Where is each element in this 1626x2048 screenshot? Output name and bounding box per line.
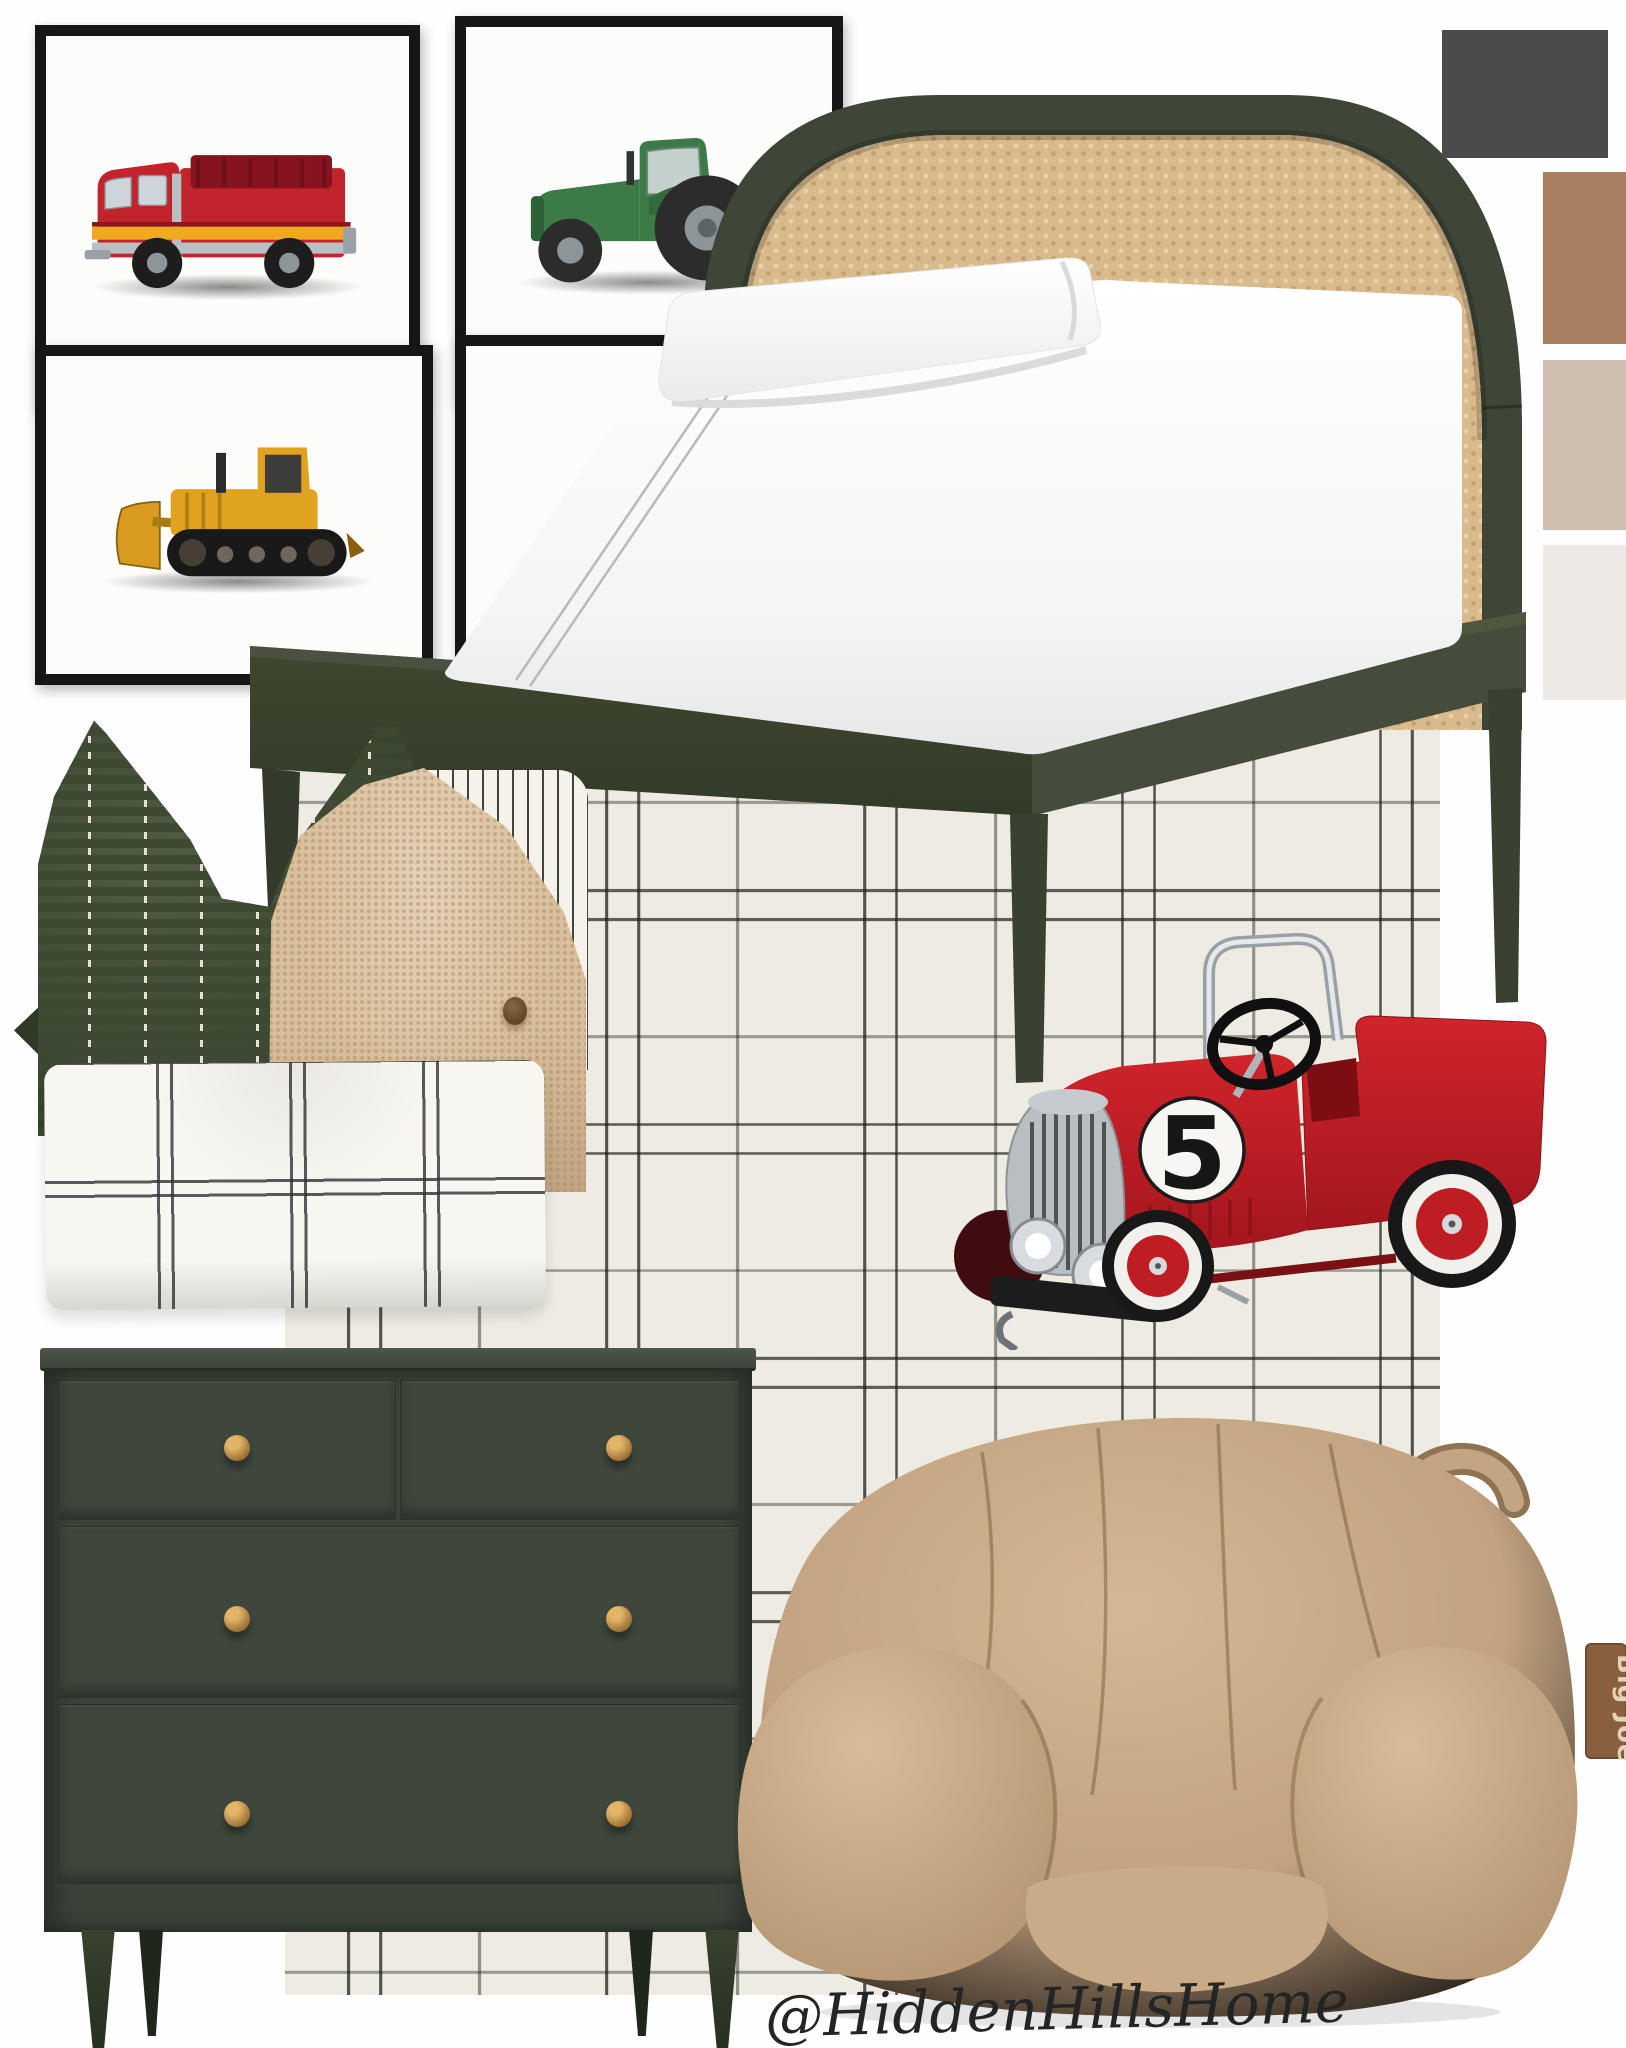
dresser-leg (136, 1930, 166, 2036)
rear-wheel (1388, 1160, 1516, 1288)
front-wheel (1102, 1210, 1214, 1322)
drawer (58, 1526, 740, 1698)
bean-bag-tag-label: Big Joe (1611, 1654, 1626, 1763)
windowpane-lumbar-pillow (44, 1060, 546, 1310)
pillow-button (503, 997, 527, 1025)
bean-bag-tag: Big Joe (1586, 1644, 1626, 1763)
dresser-leg (76, 1930, 120, 2048)
color-swatch-off-white (1543, 545, 1626, 700)
color-swatch-charcoal (1442, 30, 1608, 158)
green-dresser (40, 1348, 756, 2048)
bean-bag-chair: Big Joe (730, 1405, 1626, 2048)
brass-knob (606, 1606, 632, 1632)
bean-bag-arm (738, 1647, 1056, 1981)
brass-knob (224, 1606, 250, 1632)
brass-knob (224, 1435, 250, 1461)
brass-knob (224, 1801, 250, 1827)
racing-number: 5 (1157, 1095, 1227, 1212)
drawer (58, 1704, 740, 1884)
brass-knob (606, 1435, 632, 1461)
brass-knob (606, 1801, 632, 1827)
dresser-body (44, 1370, 752, 1932)
color-swatch-saddle-brown (1543, 172, 1626, 344)
mood-board: 5 (0, 0, 1626, 2048)
dresser-top (40, 1348, 756, 1371)
red-pedal-car: 5 (950, 920, 1626, 1350)
dresser-leg (626, 1930, 656, 2036)
drawer (400, 1380, 740, 1520)
bean-bag-arm (1293, 1647, 1577, 1980)
watermark-handle: @HiddenHillsHome (764, 1967, 1349, 2048)
color-swatch-warm-beige (1543, 360, 1626, 530)
